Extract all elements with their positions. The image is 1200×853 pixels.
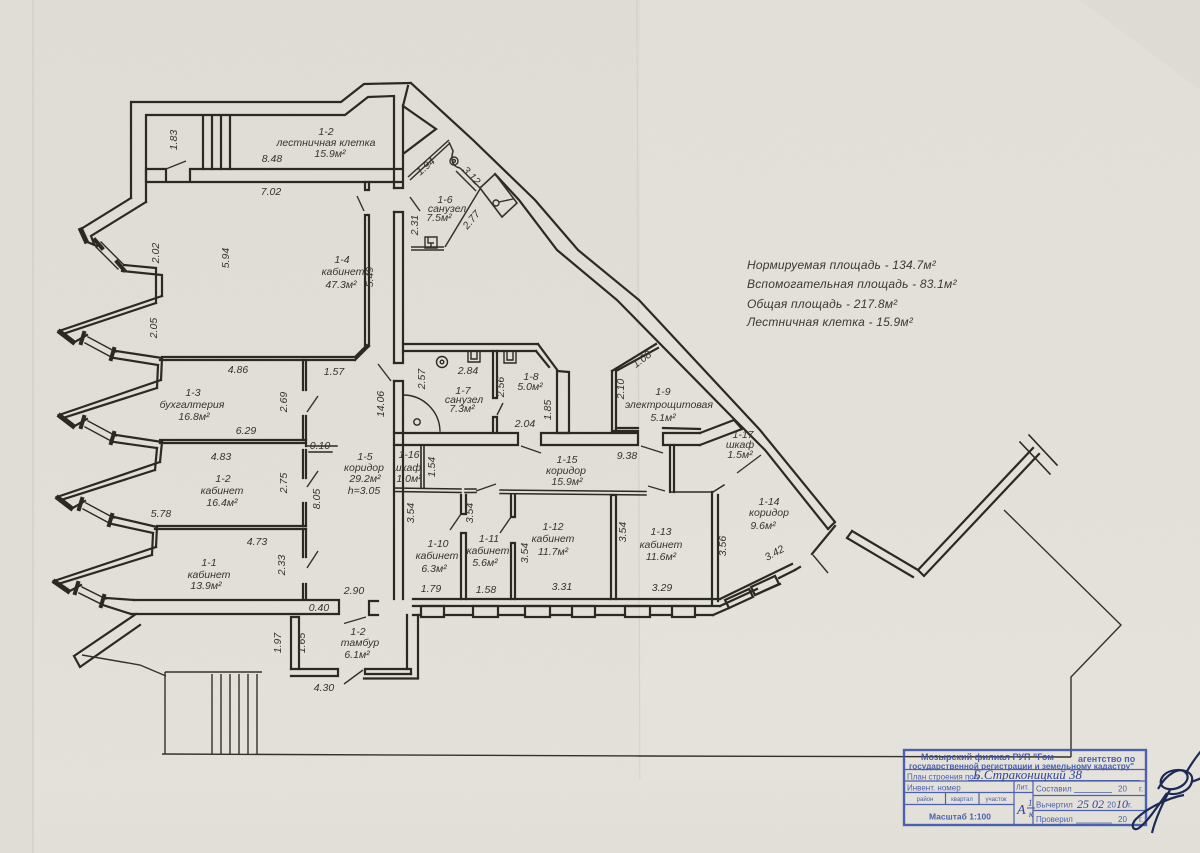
svg-text:1-3: 1-3 xyxy=(185,387,200,399)
svg-text:11.6м²: 11.6м² xyxy=(646,551,677,563)
svg-text:2.33: 2.33 xyxy=(276,555,288,577)
svg-text:2.75: 2.75 xyxy=(278,473,290,495)
svg-text:коридор: коридор xyxy=(749,507,789,519)
svg-text:А: А xyxy=(1016,803,1026,818)
svg-text:20: 20 xyxy=(1118,815,1127,824)
svg-text:1.65: 1.65 xyxy=(296,633,308,654)
svg-text:г.: г. xyxy=(1128,801,1132,810)
svg-text:16.4м²: 16.4м² xyxy=(206,497,238,509)
svg-text:2.69: 2.69 xyxy=(278,392,290,414)
svg-text:1.97: 1.97 xyxy=(272,632,284,654)
svg-text:Б.Страконицкий 38: Б.Страконицкий 38 xyxy=(972,767,1083,782)
svg-text:1-11: 1-11 xyxy=(479,533,499,545)
svg-text:3.54: 3.54 xyxy=(405,503,417,524)
svg-text:1.85: 1.85 xyxy=(542,400,554,421)
svg-text:6.1м²: 6.1м² xyxy=(344,649,370,661)
svg-text:1-13: 1-13 xyxy=(650,526,671,538)
svg-text:район: район xyxy=(917,796,934,803)
svg-text:3.54: 3.54 xyxy=(617,522,629,543)
svg-text:2.05: 2.05 xyxy=(148,318,160,340)
svg-text:Лит.: Лит. xyxy=(1016,785,1029,792)
svg-text:8.05: 8.05 xyxy=(311,489,323,510)
svg-text:25 02: 25 02 xyxy=(1077,797,1104,811)
svg-text:5.94: 5.94 xyxy=(220,248,232,269)
svg-text:Лестничная клетка - 15.9м²: Лестничная клетка - 15.9м² xyxy=(746,315,914,329)
svg-text:1.54: 1.54 xyxy=(426,457,438,478)
svg-text:кабинет: кабинет xyxy=(467,545,510,557)
svg-text:3.54: 3.54 xyxy=(519,543,531,564)
svg-text:Общая площадь - 217.8м²: Общая площадь - 217.8м² xyxy=(747,297,898,311)
svg-text:16.8м²: 16.8м² xyxy=(178,411,210,423)
svg-text:1: 1 xyxy=(1028,798,1033,808)
svg-text:0.40: 0.40 xyxy=(309,602,330,614)
svg-text:15.9м²: 15.9м² xyxy=(314,148,346,160)
svg-text:2.56: 2.56 xyxy=(495,377,507,399)
svg-text:4.30: 4.30 xyxy=(314,682,335,694)
svg-text:2.57: 2.57 xyxy=(416,368,428,391)
svg-text:3.56: 3.56 xyxy=(717,536,729,557)
svg-text:1-1: 1-1 xyxy=(201,557,216,569)
svg-text:11.7м²: 11.7м² xyxy=(538,546,569,558)
svg-text:1.57: 1.57 xyxy=(324,366,346,378)
svg-text:2.84: 2.84 xyxy=(457,365,479,377)
svg-text:3.31: 3.31 xyxy=(552,581,572,593)
svg-text:20: 20 xyxy=(1118,785,1127,794)
svg-text:электрощитовая: электрощитовая xyxy=(625,399,713,411)
svg-text:6.3м²: 6.3м² xyxy=(421,563,447,575)
svg-text:Масштаб 1:100: Масштаб 1:100 xyxy=(929,812,991,822)
svg-text:кабинет: кабинет xyxy=(640,539,683,551)
svg-text:квартал: квартал xyxy=(951,797,973,803)
svg-text:кабинет: кабинет xyxy=(532,533,575,545)
svg-text:14.06: 14.06 xyxy=(375,391,387,417)
svg-text:1-10: 1-10 xyxy=(427,538,448,550)
svg-text:29.2м²: 29.2м² xyxy=(348,473,381,485)
svg-text:h=3.05: h=3.05 xyxy=(348,485,381,497)
svg-text:1.58: 1.58 xyxy=(476,584,497,596)
svg-text:2.10: 2.10 xyxy=(615,379,627,401)
svg-text:2.02: 2.02 xyxy=(150,243,162,265)
svg-text:2.90: 2.90 xyxy=(343,585,365,597)
svg-text:кабинет: кабинет xyxy=(322,266,365,278)
svg-text:Нормируемая площадь - 134.7: Нормируемая площадь - 134.7м² xyxy=(747,258,937,272)
svg-text:бухгалтерия: бухгалтерия xyxy=(160,399,225,411)
svg-text:1.83: 1.83 xyxy=(168,130,180,151)
svg-text:1-2: 1-2 xyxy=(215,473,230,485)
svg-text:10: 10 xyxy=(1116,797,1128,811)
svg-text:1.5м²: 1.5м² xyxy=(727,449,753,461)
svg-text:Вычертил: Вычертил xyxy=(1036,801,1073,810)
svg-text:1-4: 1-4 xyxy=(334,254,349,266)
svg-text:5.0м²: 5.0м² xyxy=(517,381,543,393)
svg-text:7.5м²: 7.5м² xyxy=(426,212,452,224)
svg-text:9.38: 9.38 xyxy=(617,450,638,462)
svg-text:3.54: 3.54 xyxy=(464,503,476,524)
svg-text:участок: участок xyxy=(985,797,1006,803)
svg-text:Инвент. номер: Инвент. номер xyxy=(907,784,961,793)
svg-text:2.31: 2.31 xyxy=(409,215,421,236)
svg-text:г.: г. xyxy=(1139,785,1143,794)
svg-text:1-12: 1-12 xyxy=(542,521,563,533)
svg-text:кабинет: кабинет xyxy=(201,485,244,497)
svg-text:Вспомогательная площадь - 83.: Вспомогательная площадь - 83.1м² xyxy=(747,277,957,291)
svg-text:8.48: 8.48 xyxy=(262,153,283,165)
svg-text:1-9: 1-9 xyxy=(655,386,670,398)
svg-text:7.3м²: 7.3м² xyxy=(449,403,475,415)
svg-text:1.79: 1.79 xyxy=(421,583,442,595)
svg-text:5.1м²: 5.1м² xyxy=(650,412,676,424)
svg-text:2.04: 2.04 xyxy=(514,418,536,430)
svg-text:7.02: 7.02 xyxy=(261,186,282,198)
svg-text:Проверил: Проверил xyxy=(1036,815,1073,824)
svg-text:4.73: 4.73 xyxy=(247,536,268,548)
svg-text:5.49: 5.49 xyxy=(364,267,376,288)
svg-text:0.10: 0.10 xyxy=(310,440,331,452)
svg-text:1-16: 1-16 xyxy=(398,449,419,461)
svg-text:тамбур: тамбур xyxy=(341,637,380,649)
svg-text:Составил: Составил xyxy=(1036,785,1072,794)
svg-text:4.86: 4.86 xyxy=(228,364,249,376)
svg-text:Мозырский филиал РУП "Гом: Мозырский филиал РУП "Гом xyxy=(921,752,1054,762)
svg-text:6.29: 6.29 xyxy=(236,425,257,437)
svg-text:4.83: 4.83 xyxy=(211,451,232,463)
svg-text:5.6м²: 5.6м² xyxy=(472,557,498,569)
svg-text:1.0м²: 1.0м² xyxy=(396,473,422,485)
svg-text:15.9м²: 15.9м² xyxy=(551,476,583,488)
svg-text:5.78: 5.78 xyxy=(151,508,172,520)
svg-text:47.3м²: 47.3м² xyxy=(325,279,357,291)
svg-text:9.6м²: 9.6м² xyxy=(750,520,776,532)
svg-text:кабинет: кабинет xyxy=(416,550,459,562)
svg-text:13.9м²: 13.9м² xyxy=(190,580,222,592)
svg-text:3.29: 3.29 xyxy=(652,582,673,594)
